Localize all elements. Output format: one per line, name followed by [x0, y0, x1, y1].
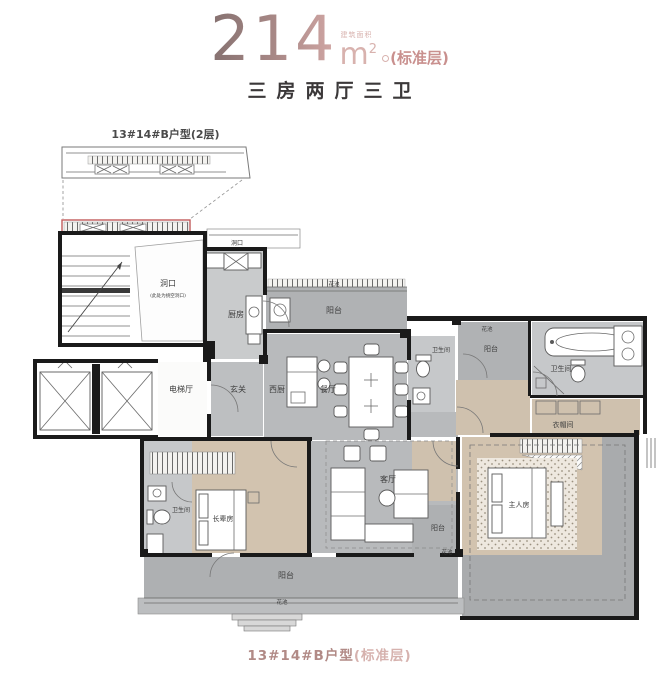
room-label-void-note: (此处为挑空洞口) [150, 292, 186, 299]
room-label-balcony-ne: 阳台 [484, 344, 498, 353]
void-area [135, 240, 203, 341]
room-label-dining: 餐厅 [320, 385, 336, 394]
room-label-west-kitchen: 西厨 [269, 385, 285, 394]
floorplan-page: 214 建筑面积 m2 (标准层) 三房两厅三卫 13#14#B户型(2层) [0, 0, 659, 675]
inset-connector-lines [63, 180, 242, 219]
elder-closet-icon [150, 452, 235, 474]
room-label-bath-guest: 卫生间 [432, 346, 450, 354]
floorplan-drawing: 洞口 (此处为挑空洞口) 洞口 厨房 阳台 花池 电梯厅 玄关 西厨 餐厅 卫生… [0, 0, 659, 675]
caption-unit-name: 13#14#B户型 [247, 648, 354, 664]
washer-icon [270, 298, 290, 322]
toilet-icon-master [571, 360, 585, 382]
wardrobe-rack-icon [520, 439, 582, 453]
room-label-elevator-hall: 电梯厅 [169, 384, 193, 394]
room-label-bath-elder: 卫生间 [172, 506, 190, 514]
room-label-flower-ne: 花池 [481, 325, 493, 333]
stairs-icon [62, 256, 130, 336]
room-label-master-room: 主人房 [509, 500, 530, 509]
room-label-flower-north: 花池 [328, 280, 340, 288]
room-label-balcony-se: 阳台 [431, 523, 445, 532]
second-floor-inset [62, 147, 250, 178]
room-label-kitchen: 厨房 [228, 309, 244, 319]
room-label-flower-south: 花池 [276, 598, 288, 606]
vanity-icon [614, 326, 642, 366]
room-label-foyer: 玄关 [230, 384, 246, 394]
room-label-void: 洞口 [160, 278, 176, 288]
side-steps-icon [647, 438, 655, 468]
room-label-closet: 衣帽间 [553, 420, 574, 429]
room-label-void-small: 洞口 [231, 239, 243, 247]
entry-steps-icon [232, 614, 302, 631]
room-label-flower-se: 花池 [441, 548, 453, 556]
room-label-balcony-south: 阳台 [278, 570, 294, 580]
room-label-bath-master: 卫生间 [551, 364, 572, 373]
room-label-elder-room: 长辈房 [213, 514, 234, 523]
room-label-balcony-north: 阳台 [326, 305, 342, 315]
room-label-living: 客厅 [380, 474, 396, 484]
plan-caption: 13#14#B户型(标准层) [0, 644, 659, 664]
caption-floor-note: (标准层) [354, 648, 412, 664]
